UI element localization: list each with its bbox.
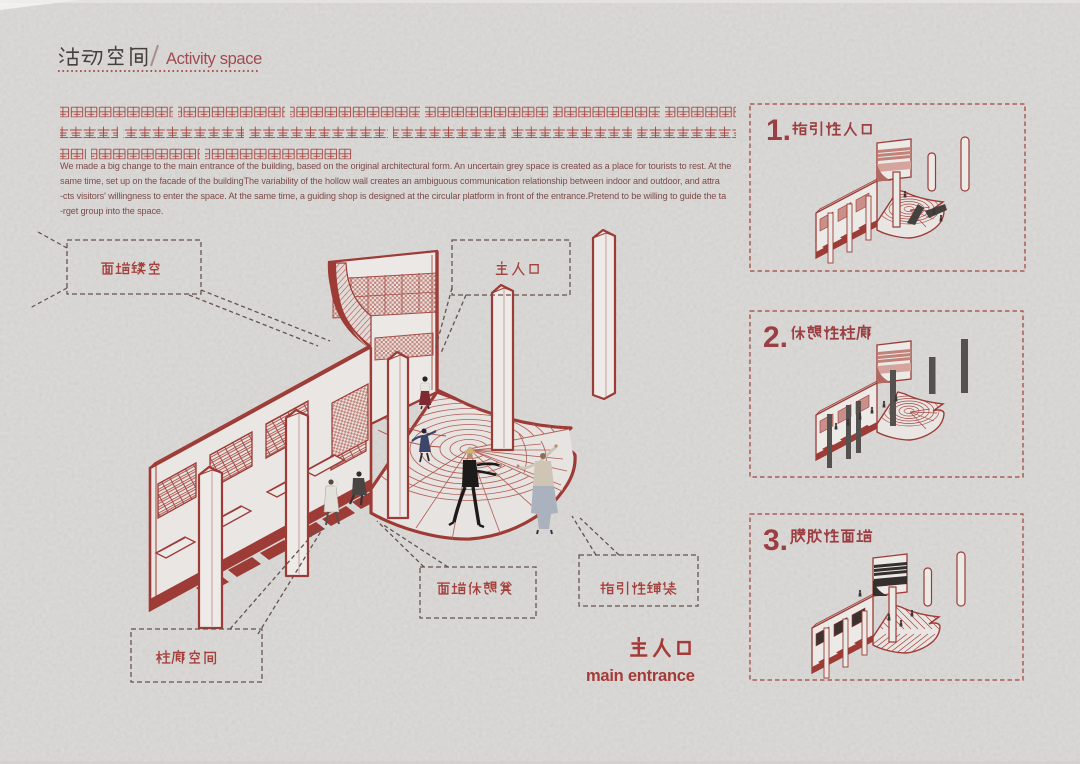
svg-text:Activity space: Activity space: [166, 50, 262, 68]
svg-text:1.: 1.: [766, 114, 791, 147]
svg-text:same time, set up on the facad: same time, set up on the facade of the b…: [60, 176, 721, 186]
svg-text:3.: 3.: [763, 524, 788, 557]
svg-text:main entrance: main entrance: [586, 667, 695, 685]
svg-text:2.: 2.: [763, 321, 788, 354]
svg-text:We made a big change to the ma: We made a big change to the main entranc…: [60, 161, 731, 171]
svg-text:-cts visitors' willingness to: -cts visitors' willingness to enter the …: [60, 191, 727, 201]
svg-text:-rget group into the space.: -rget group into the space.: [60, 206, 163, 216]
